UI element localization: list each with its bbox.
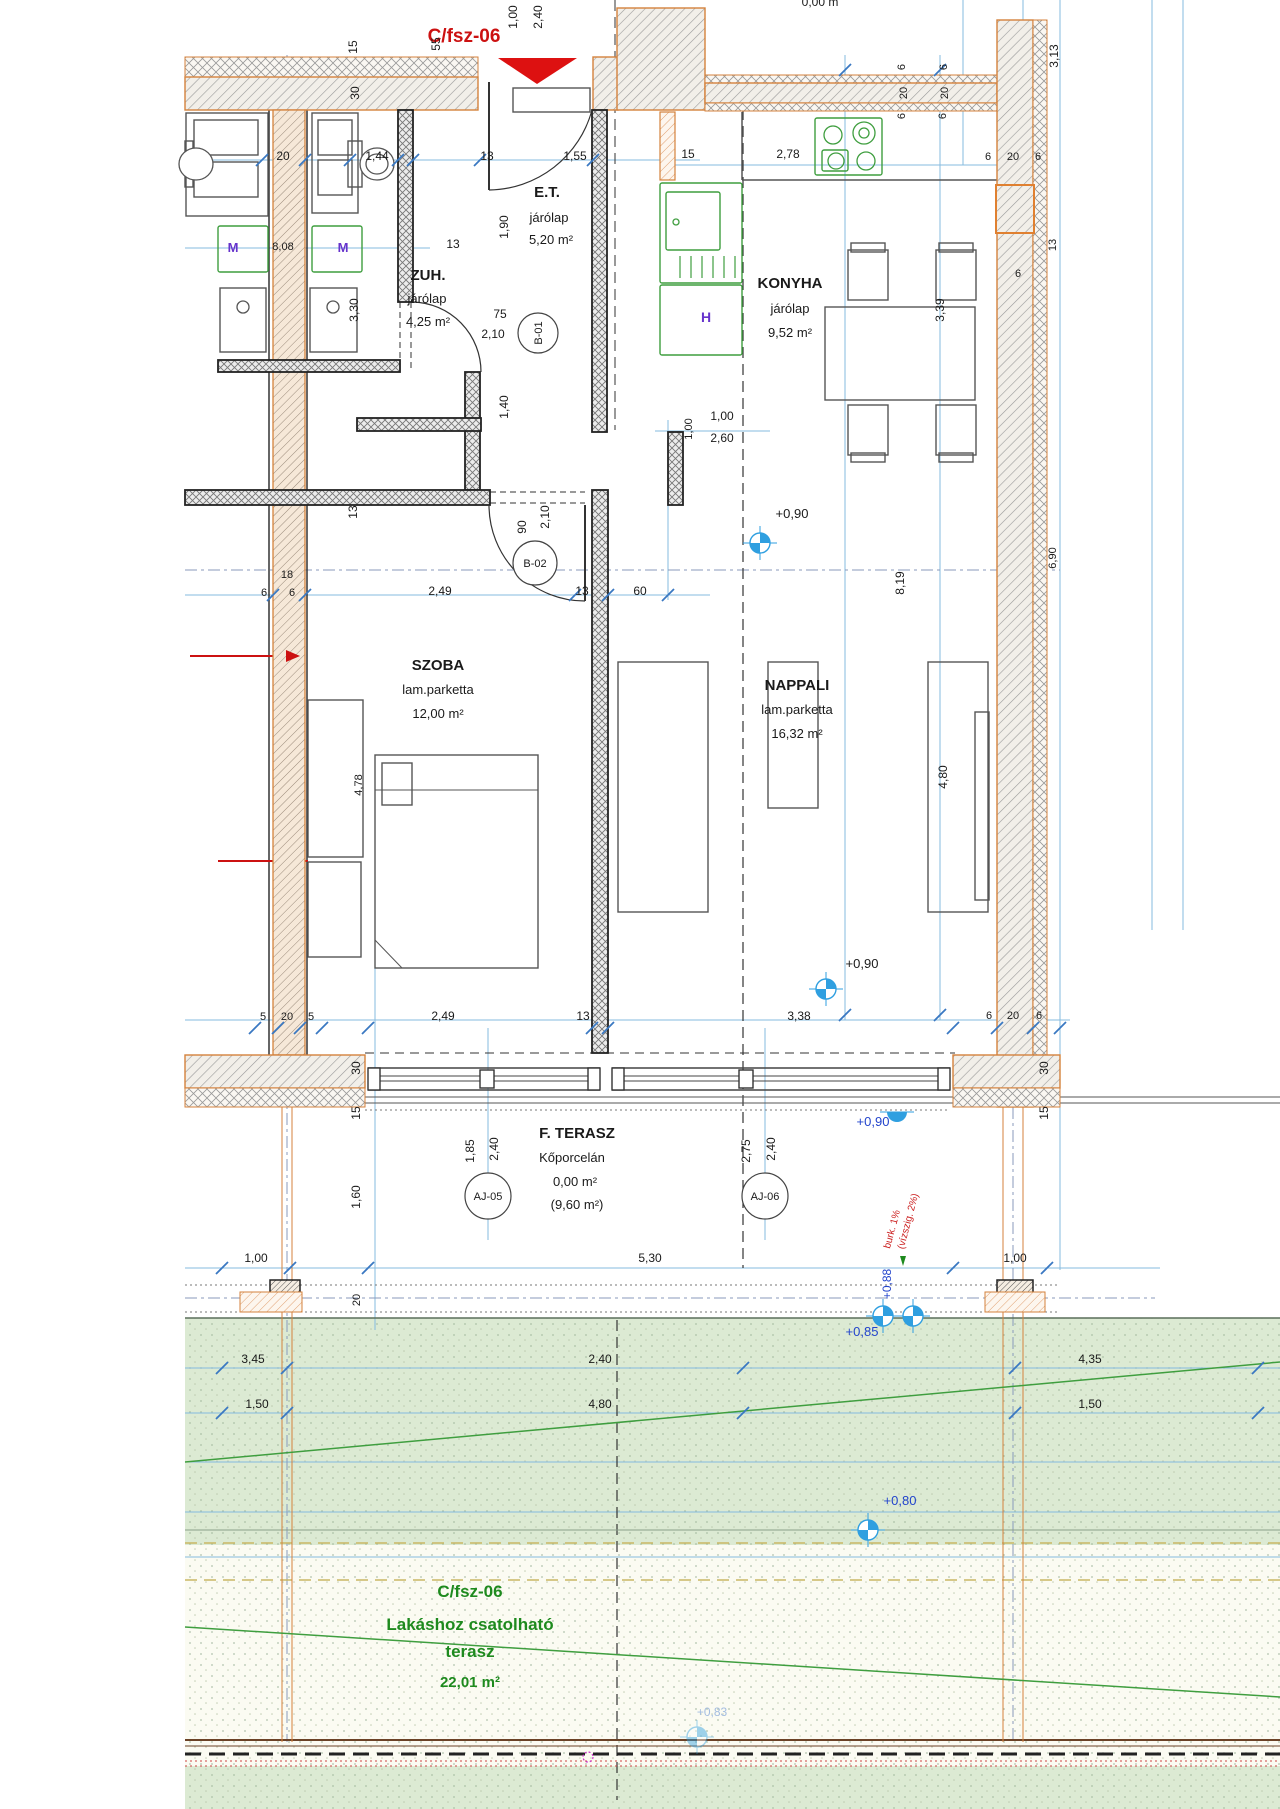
marker-quadrant bbox=[750, 543, 760, 553]
wall-segment-shaft bbox=[660, 112, 675, 180]
dim-label: 6 bbox=[1015, 268, 1021, 280]
dim-label: 55 bbox=[429, 37, 443, 51]
dim-label: 1,40 bbox=[497, 395, 511, 419]
marker-quadrant bbox=[883, 1306, 893, 1316]
elevation-label: +0,90 bbox=[776, 506, 809, 521]
elevation-marker bbox=[743, 526, 777, 560]
cooktop-burner bbox=[824, 126, 842, 144]
furniture bbox=[382, 763, 412, 805]
wall-segment-slab bbox=[985, 1292, 1045, 1312]
door-b01-arc bbox=[413, 302, 481, 372]
door-tag-b01-label: B-01 bbox=[533, 321, 545, 344]
dim-label: 4,78 bbox=[353, 774, 365, 795]
wall-segment-dark bbox=[218, 360, 400, 372]
dim-label: 90 bbox=[515, 520, 529, 534]
room-area-szoba: 12,00 m² bbox=[412, 706, 464, 721]
dim-label: 1,00 bbox=[244, 1251, 268, 1265]
dim-label: 6 bbox=[985, 151, 991, 163]
elevation-label: +0,85 bbox=[846, 1324, 879, 1339]
room-label-nappali: NAPPALI bbox=[765, 677, 830, 694]
wall-segment-dark bbox=[185, 490, 490, 505]
window-tag-aj05-label: AJ-05 bbox=[474, 1191, 503, 1203]
dim-label: 6 bbox=[937, 113, 949, 119]
wall-segment-ins bbox=[185, 1088, 365, 1107]
dim-label: 4,35 bbox=[1078, 1352, 1102, 1366]
room-area-nappali: 16,32 m² bbox=[771, 726, 823, 741]
dim-label: 6 bbox=[896, 113, 908, 119]
furniture bbox=[308, 862, 361, 957]
furniture bbox=[318, 160, 352, 195]
dim-label: 20 bbox=[276, 149, 290, 163]
terrace-area: 22,01 m² bbox=[440, 1674, 500, 1691]
room-label-szoba: SZOBA bbox=[412, 657, 465, 674]
room-area-et: 5,20 m² bbox=[529, 232, 574, 247]
room-finish-szoba: lam.parketta bbox=[402, 682, 474, 697]
wall-segment-ins bbox=[953, 1088, 1060, 1107]
room-finish-konyha: járólap bbox=[769, 301, 809, 316]
ground-zones bbox=[185, 1318, 1280, 1809]
dim-label: 20 bbox=[1007, 151, 1019, 163]
wall-segment-diag bbox=[617, 8, 705, 110]
dim-label: 15 bbox=[346, 40, 360, 54]
dim-label: 2,60 bbox=[710, 431, 734, 445]
guide-and-dimension-lines bbox=[185, 0, 1280, 1800]
dim-label: 13 bbox=[346, 505, 360, 519]
room-label-konyha: KONYHA bbox=[757, 275, 822, 292]
terrace-line3: terasz bbox=[445, 1642, 494, 1661]
window-frame-cap bbox=[739, 1070, 753, 1088]
dim-label: 15 bbox=[1037, 1106, 1051, 1120]
dim-label: 20 bbox=[939, 87, 951, 99]
wall-segment-ins bbox=[705, 75, 997, 83]
wall-segment-diag bbox=[705, 83, 997, 103]
dim-label: 1,00 bbox=[506, 5, 520, 29]
wall-segment-dark bbox=[357, 418, 481, 431]
kitchen-fixture bbox=[218, 226, 268, 272]
dim-label: 6 bbox=[1036, 1010, 1042, 1022]
dim-label: 15 bbox=[681, 147, 695, 161]
dim-label: 6 bbox=[289, 587, 295, 599]
washer-symbol: M bbox=[228, 240, 239, 255]
walls-layer bbox=[185, 8, 1060, 1312]
elevation-label-faint: +0,83 bbox=[697, 1705, 728, 1719]
dim-label: 1,60 bbox=[349, 1185, 363, 1209]
wall-segment-dark bbox=[668, 432, 683, 505]
wall-segment-slab bbox=[240, 1292, 302, 1312]
dim-label: 5 bbox=[260, 1011, 266, 1023]
dim-label: 1,00 bbox=[710, 409, 734, 423]
dim-label: 30 bbox=[349, 1061, 363, 1075]
marker-quadrant bbox=[913, 1306, 923, 1316]
window-frame-cap bbox=[368, 1068, 380, 1090]
wall-segment-diag bbox=[997, 20, 1033, 1107]
furniture bbox=[825, 307, 975, 400]
dim-label: 3,30 bbox=[347, 298, 361, 322]
dim-label: 5 bbox=[308, 1011, 314, 1023]
cooktop-burner bbox=[853, 122, 875, 144]
dim-label: 20 bbox=[898, 87, 910, 99]
dim-label: 6 bbox=[261, 587, 267, 599]
dim-label: 1,90 bbox=[497, 215, 511, 239]
room-area-konyha: 9,52 m² bbox=[768, 325, 813, 340]
furniture bbox=[936, 405, 976, 455]
furniture bbox=[375, 755, 538, 968]
wall-segment-ins bbox=[1033, 20, 1047, 1107]
marker-quadrant bbox=[826, 979, 836, 989]
room-finish-et: járólap bbox=[528, 210, 568, 225]
window-frame-cap bbox=[588, 1068, 600, 1090]
cooktop-burner bbox=[828, 153, 844, 169]
dim-label: 20 bbox=[281, 1011, 293, 1023]
dim-label: 8,19 bbox=[893, 571, 907, 595]
dim-label: 2,49 bbox=[431, 1009, 455, 1023]
window-frame-cap bbox=[938, 1068, 950, 1090]
window-tag-aj06-label: AJ-06 bbox=[751, 1191, 780, 1203]
dim-label: 1,50 bbox=[245, 1397, 269, 1411]
dim-label: 0,00 m bbox=[802, 0, 839, 9]
dim-label: 18 bbox=[281, 569, 293, 581]
furniture bbox=[618, 662, 708, 912]
window-frame-cap bbox=[480, 1070, 494, 1088]
dim-label: 2,40 bbox=[531, 5, 545, 29]
marker-half bbox=[887, 1112, 907, 1122]
dim-label: 1,44 bbox=[365, 149, 389, 163]
terrace-line2: Lakáshoz csatolható bbox=[386, 1615, 553, 1634]
wall-segment-ins bbox=[185, 57, 478, 77]
room-label-et: E.T. bbox=[534, 184, 560, 201]
terrace-unit-label: C/fsz-06 bbox=[437, 1582, 502, 1601]
furniture bbox=[318, 120, 352, 155]
dim-label: 1,85 bbox=[463, 1139, 477, 1163]
guide-line bbox=[375, 940, 402, 968]
dim-label: 15 bbox=[349, 1106, 363, 1120]
dim-label: 2,75 bbox=[739, 1139, 753, 1163]
furniture bbox=[848, 405, 888, 455]
dim-label: 6 bbox=[1035, 151, 1041, 163]
dim-label: 30 bbox=[1037, 1061, 1051, 1075]
dim-label: 60 bbox=[633, 584, 647, 598]
room-label-zuh: ZUH. bbox=[411, 267, 446, 284]
furniture bbox=[848, 250, 888, 300]
dim-label: 1,55 bbox=[563, 149, 587, 163]
dim-label: 6,90 bbox=[1047, 547, 1059, 568]
room-finish-terasz: Kőporcelán bbox=[539, 1150, 605, 1165]
dim-label: 3,38 bbox=[787, 1009, 811, 1023]
wall-segment-diag bbox=[185, 77, 478, 110]
sanitary-fixture bbox=[179, 148, 213, 180]
dim-label: 2,78 bbox=[776, 147, 800, 161]
cooktop-burner bbox=[673, 219, 679, 225]
dim-tick bbox=[316, 1022, 328, 1034]
dim-label: 20 bbox=[1007, 1010, 1019, 1022]
dim-tick bbox=[249, 1022, 261, 1034]
door-tag-b02-label: B-02 bbox=[523, 558, 546, 570]
dim-label: 1,00 bbox=[683, 418, 695, 439]
furniture bbox=[936, 250, 976, 300]
room-finish-nappali: lam.parketta bbox=[761, 702, 833, 717]
dim-label: 4,80 bbox=[936, 765, 950, 789]
dim-label: 13 bbox=[480, 149, 494, 163]
room-area-terasz: 0,00 m² bbox=[553, 1174, 598, 1189]
furniture bbox=[312, 113, 358, 213]
dim-label: 13 bbox=[575, 584, 589, 598]
dim-label: 13 bbox=[576, 1009, 590, 1023]
dim-label: 30 bbox=[348, 86, 362, 100]
dim-label: 13 bbox=[446, 237, 460, 251]
kitchen-fixture bbox=[660, 183, 742, 283]
marker-quadrant bbox=[816, 989, 826, 999]
room-finish-zuh: járólap bbox=[406, 291, 446, 306]
dim-label: 3,39 bbox=[933, 298, 947, 322]
fridge-symbol: H bbox=[701, 309, 711, 325]
floor-plan-canvas: B-01B-02AJ-05AJ-06 C/fsz-061,002,4055153… bbox=[0, 0, 1280, 1809]
furniture bbox=[975, 712, 989, 900]
dim-label: 2,10 bbox=[481, 327, 505, 341]
kitchen-fixture bbox=[666, 192, 720, 250]
dim-label: 2,40 bbox=[588, 1352, 612, 1366]
dim-tick bbox=[947, 1022, 959, 1034]
dim-label: 4,80 bbox=[588, 1397, 612, 1411]
dim-label: 13 bbox=[1047, 239, 1059, 251]
furniture bbox=[513, 88, 590, 112]
sanitary-fixture bbox=[237, 301, 249, 313]
wall-segment-diag bbox=[185, 1055, 365, 1088]
dim-label: 6 bbox=[938, 64, 950, 70]
marker-quadrant bbox=[760, 533, 770, 543]
dim-label: 3,45 bbox=[241, 1352, 265, 1366]
dim-label: 6 bbox=[896, 64, 908, 70]
wall-segment-ins bbox=[705, 103, 997, 111]
slope-arrow bbox=[900, 1256, 906, 1266]
elevation-label: +0,90 bbox=[857, 1114, 890, 1129]
cooktop-burner bbox=[859, 128, 869, 138]
wall-segment-diag bbox=[593, 57, 618, 110]
dim-label: 8,08 bbox=[272, 241, 293, 253]
room-label-terasz: F. TERASZ bbox=[539, 1125, 615, 1142]
dim-label: 2,10 bbox=[538, 505, 552, 529]
elevation-label: +0,80 bbox=[884, 1493, 917, 1508]
dim-label: 6 bbox=[986, 1010, 992, 1022]
dim-label: 20 bbox=[351, 1294, 363, 1306]
wall-segment-dark bbox=[592, 490, 608, 1053]
dim-label: 2,40 bbox=[487, 1137, 501, 1161]
room-area-zuh: 4,25 m² bbox=[406, 314, 451, 329]
dim-label: 2,49 bbox=[428, 584, 452, 598]
dim-label: 1,50 bbox=[1078, 1397, 1102, 1411]
cooktop-burner bbox=[857, 152, 875, 170]
elevation-label: +0,90 bbox=[846, 956, 879, 971]
dim-tick bbox=[362, 1022, 374, 1034]
ground-stipple bbox=[185, 1318, 1280, 1809]
floor-plan-page: B-01B-02AJ-05AJ-06 C/fsz-061,002,4055153… bbox=[0, 0, 1280, 1809]
room-area2-terasz: (9,60 m²) bbox=[551, 1197, 604, 1212]
entrance-arrow bbox=[498, 58, 577, 84]
wall-segment-orangeSq bbox=[996, 185, 1034, 233]
dim-label: 1,00 bbox=[1003, 1251, 1027, 1265]
elevation-label: +0,88 bbox=[880, 1268, 894, 1299]
dim-label: 3,13 bbox=[1047, 44, 1061, 68]
elevation-marker bbox=[809, 972, 843, 1006]
dim-label: 2,40 bbox=[764, 1137, 778, 1161]
window-frame-cap bbox=[612, 1068, 624, 1090]
dim-label: 75 bbox=[493, 307, 507, 321]
dimension-ticks bbox=[216, 64, 1264, 1419]
sanitary-fixture bbox=[327, 301, 339, 313]
dim-label: 5,30 bbox=[638, 1251, 662, 1265]
furniture bbox=[220, 288, 266, 352]
washer-symbol: M bbox=[338, 240, 349, 255]
